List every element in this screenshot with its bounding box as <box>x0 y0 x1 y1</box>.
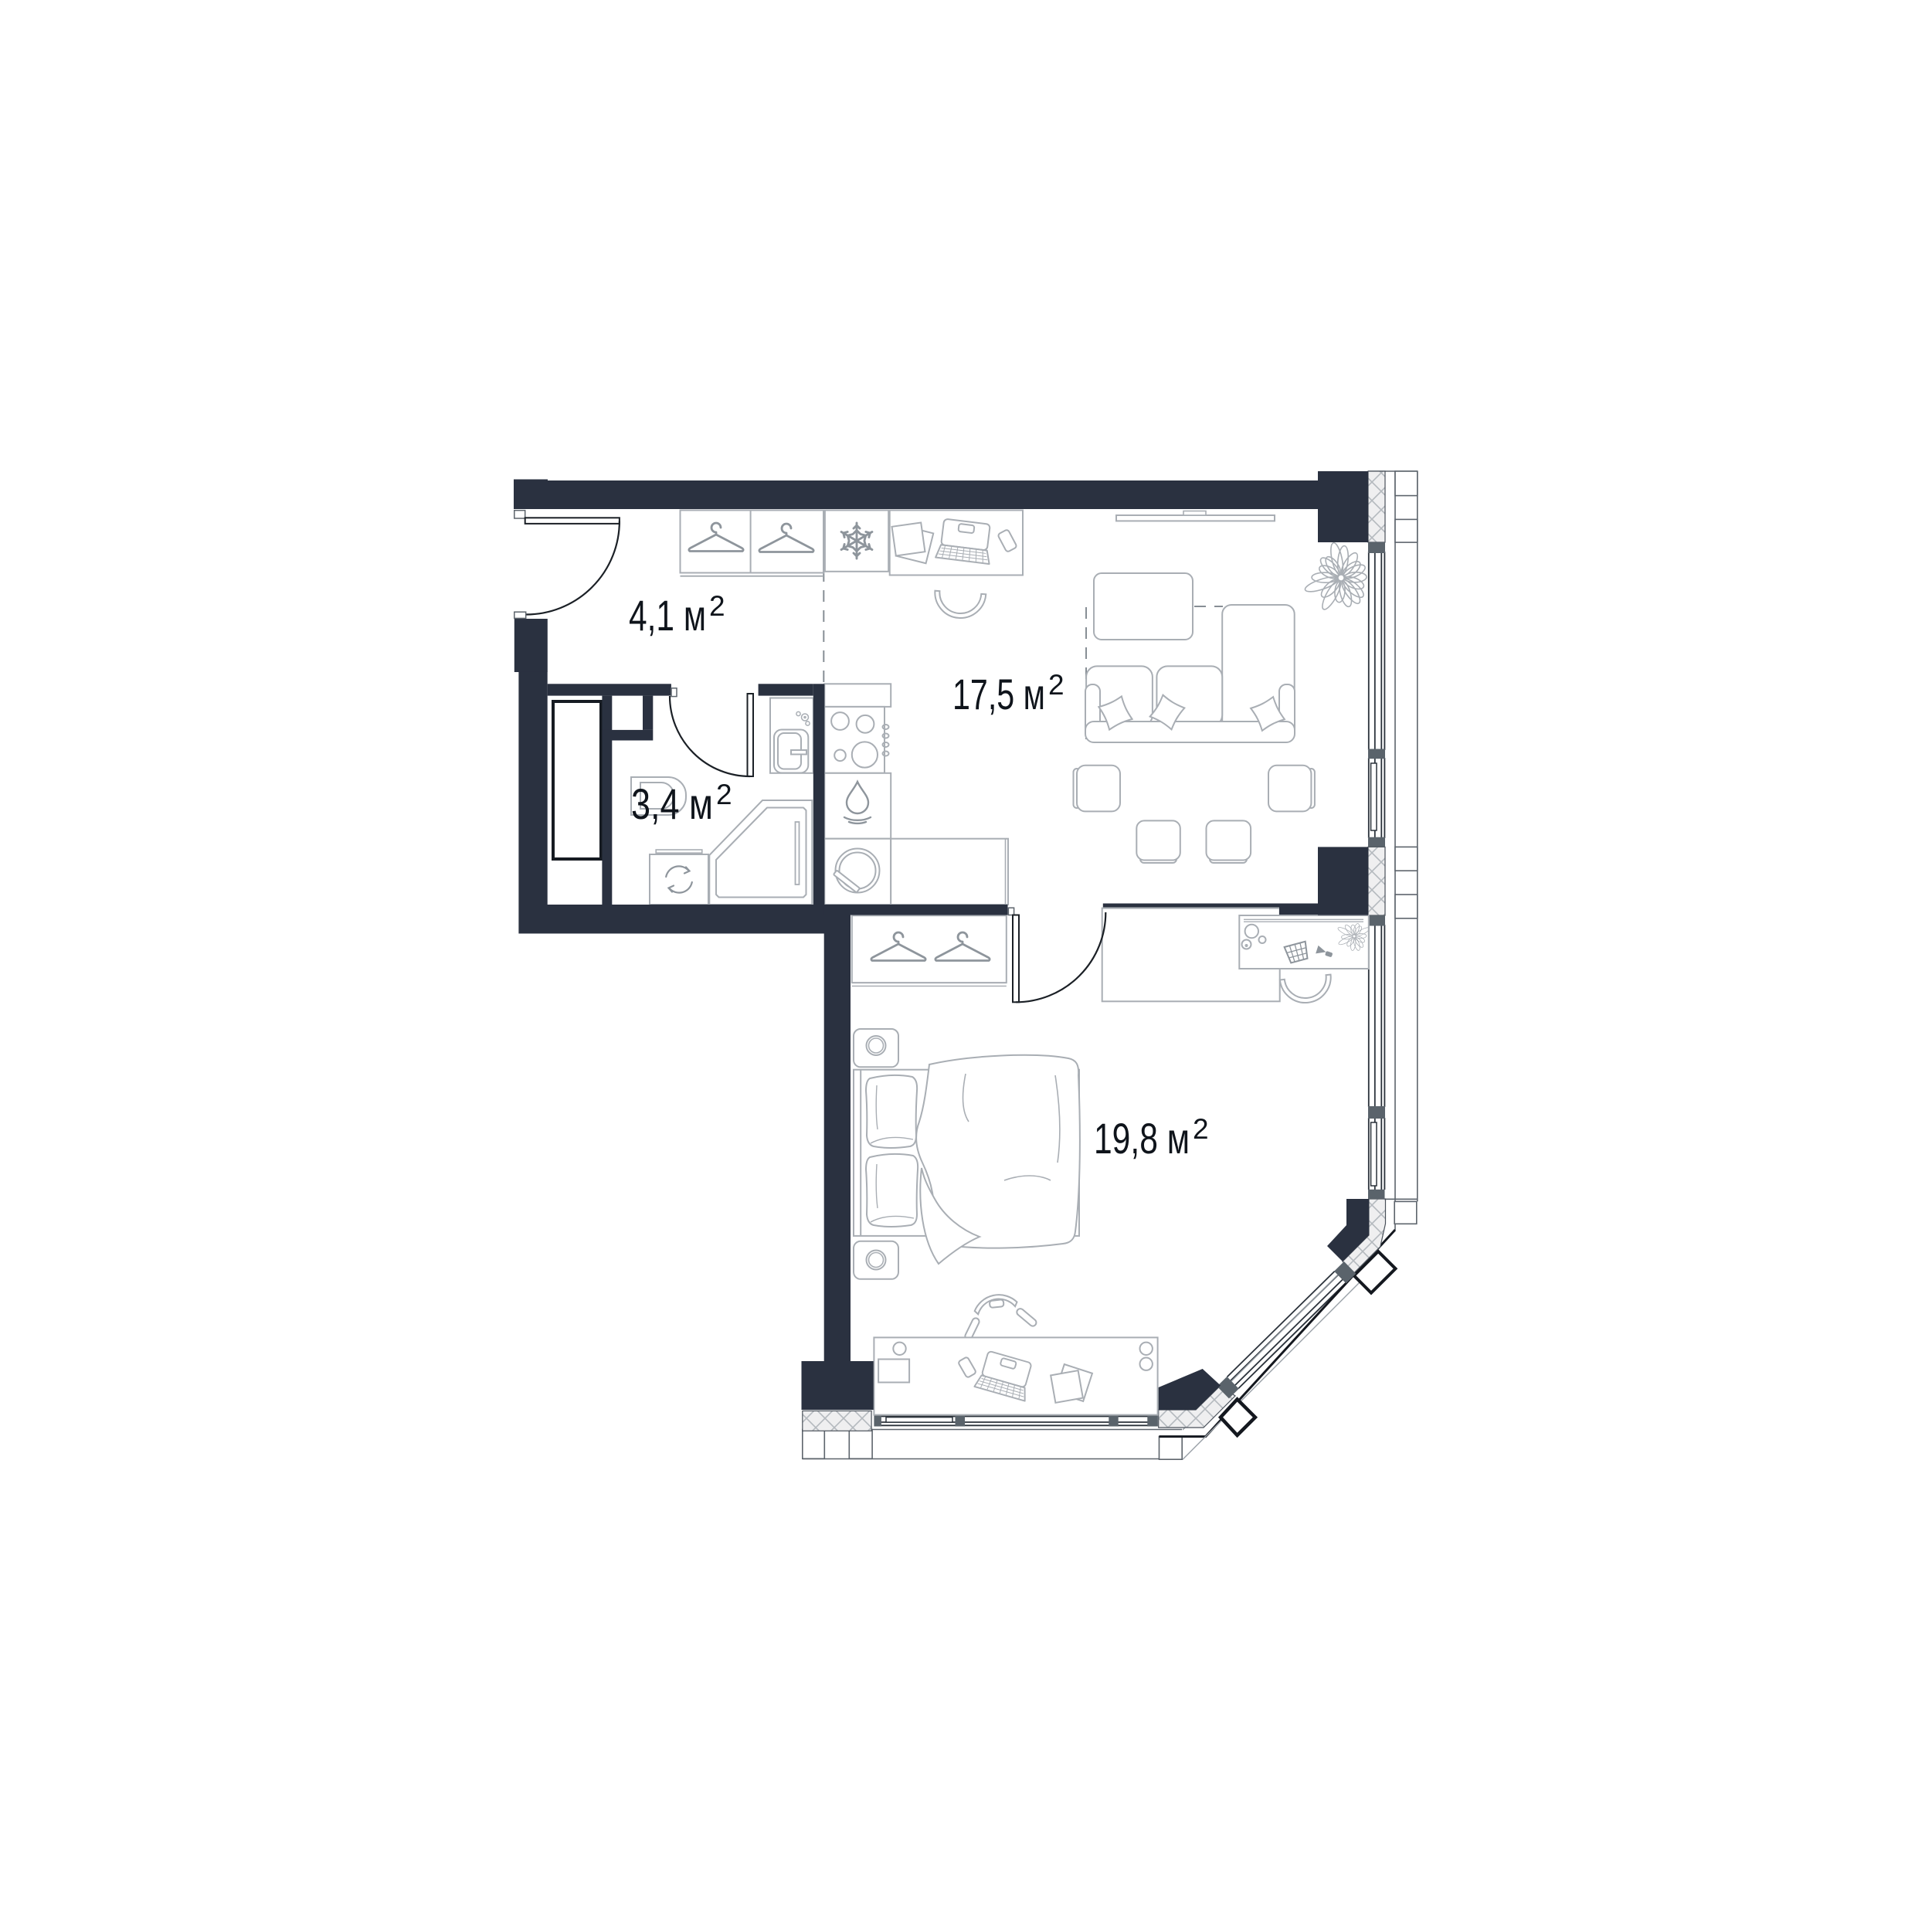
svg-text:19,8 м: 19,8 м <box>1094 1114 1190 1163</box>
svg-text:2: 2 <box>1193 1113 1209 1145</box>
svg-text:2: 2 <box>716 779 732 810</box>
svg-text:2: 2 <box>1048 669 1064 701</box>
svg-text:2: 2 <box>709 590 725 622</box>
svg-text:3,4 м: 3,4 м <box>631 779 713 828</box>
svg-text:17,5 м: 17,5 м <box>952 670 1045 718</box>
svg-text:4,1 м: 4,1 м <box>629 591 706 640</box>
